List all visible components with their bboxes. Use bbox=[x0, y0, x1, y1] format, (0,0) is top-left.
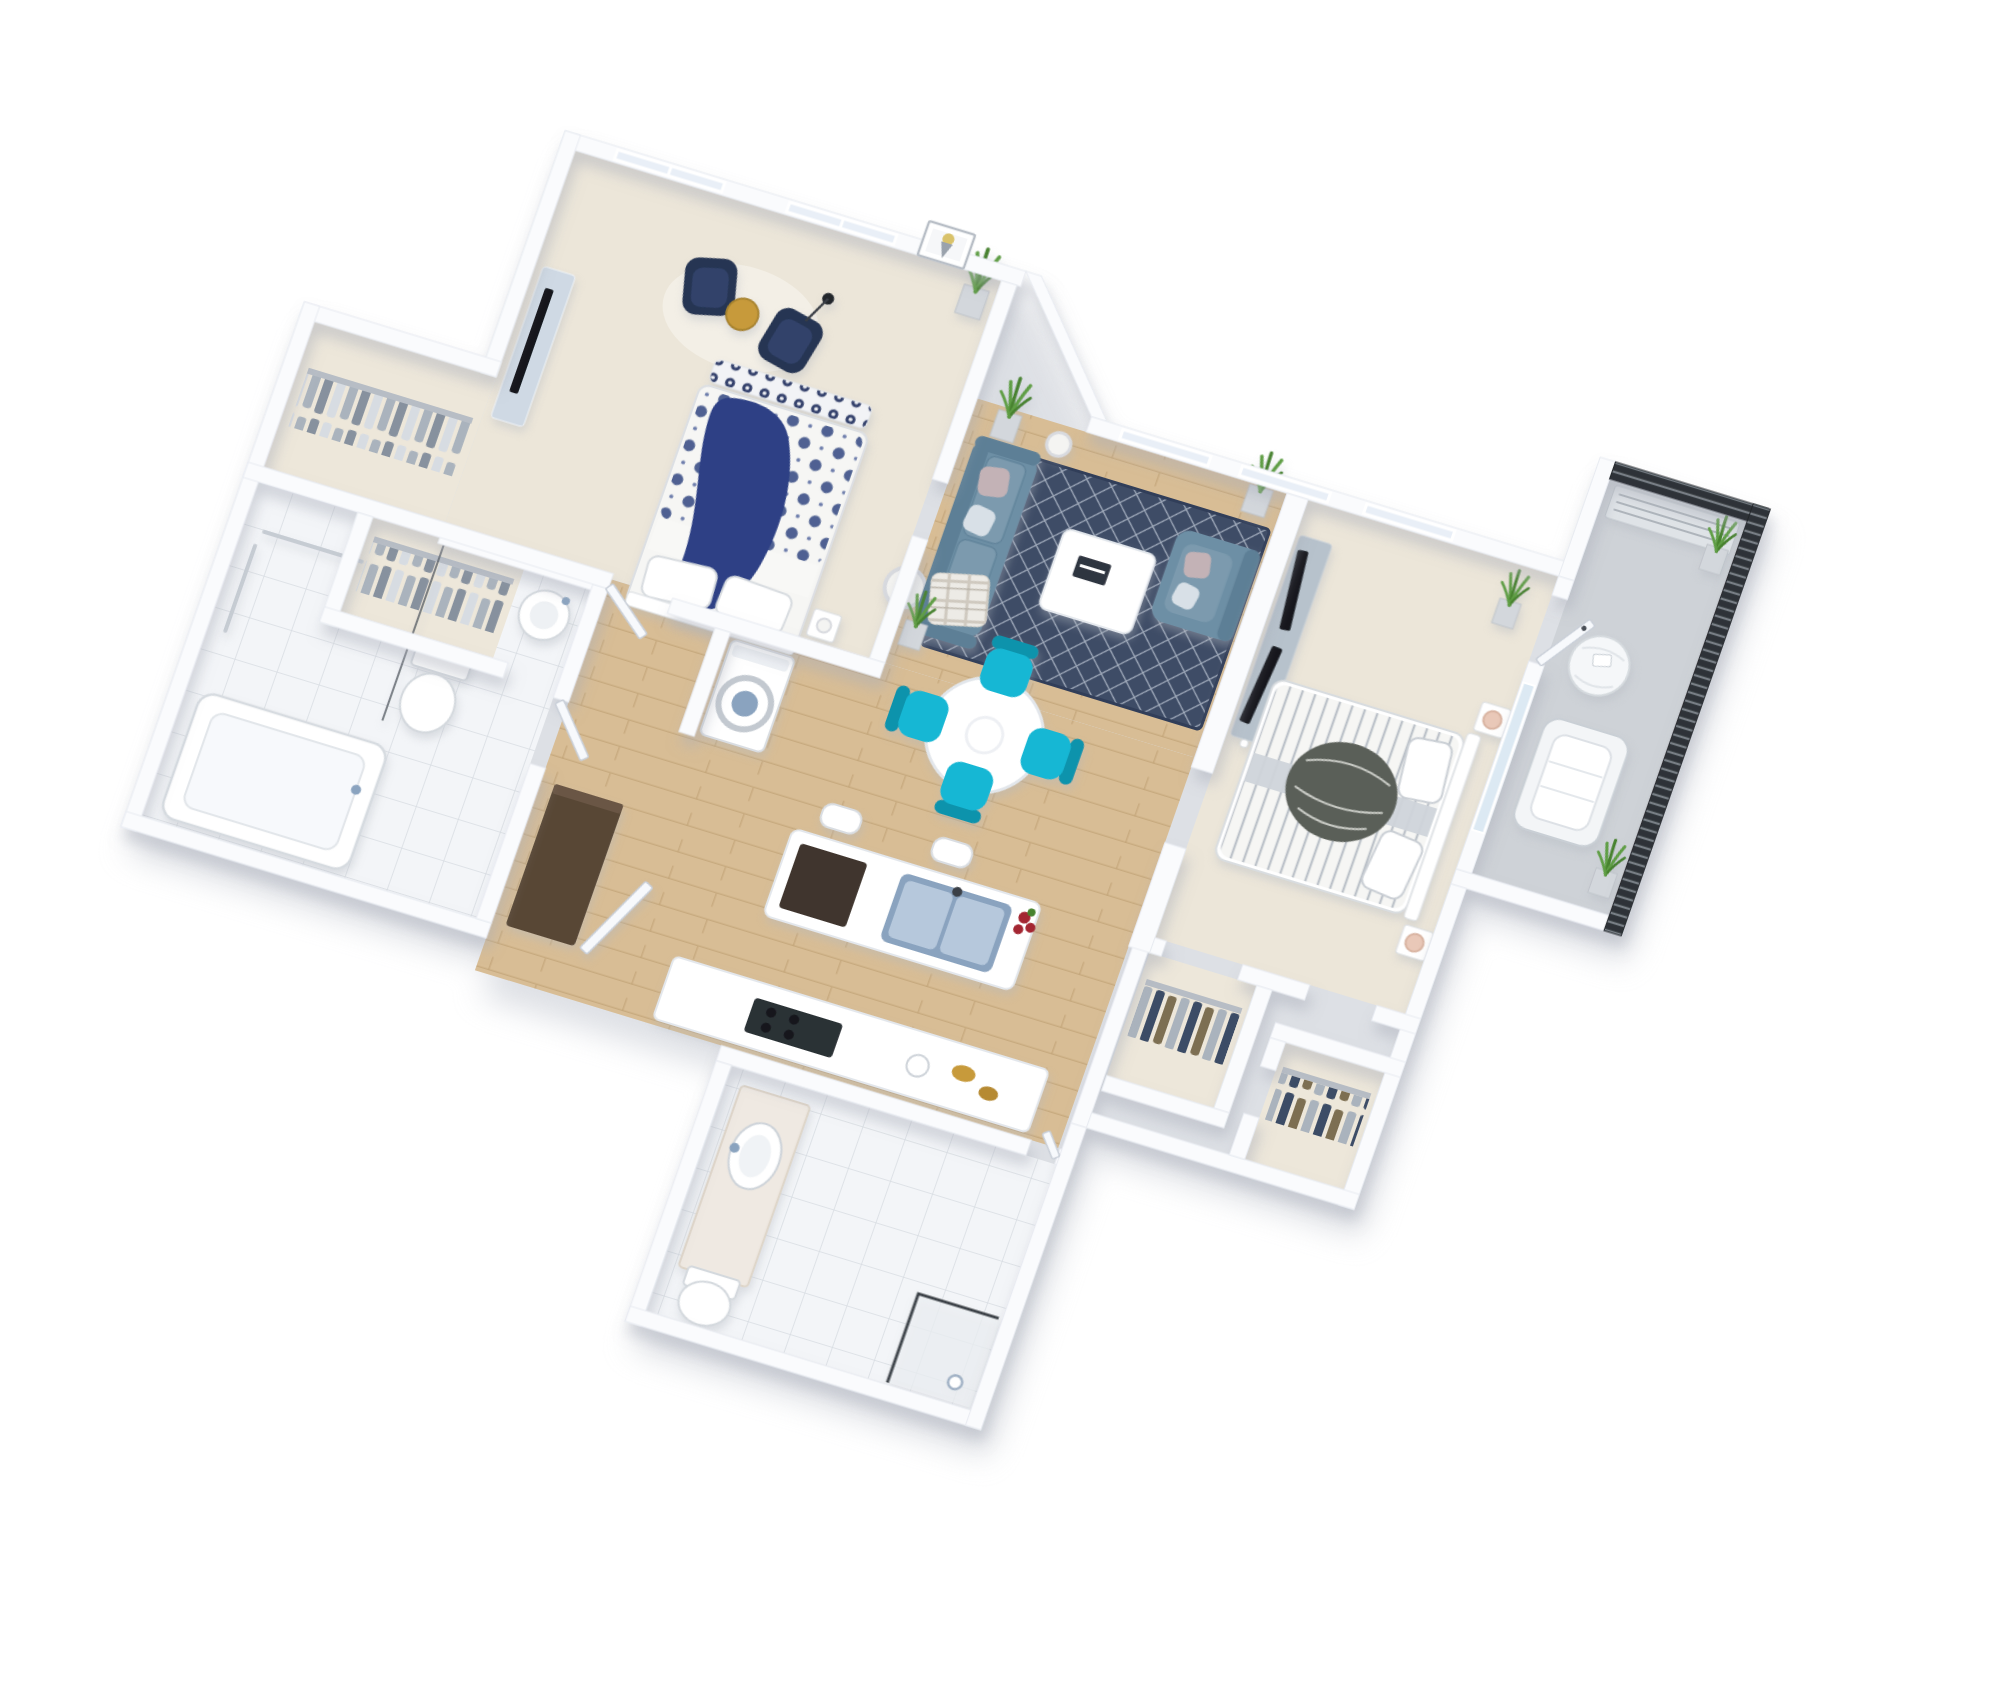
pillow bbox=[976, 465, 1011, 498]
plaid-throw bbox=[927, 573, 990, 627]
pillow bbox=[1183, 551, 1212, 579]
card bbox=[1593, 654, 1612, 667]
floorplan-3d-render bbox=[0, 0, 2000, 1700]
floorplan-canvas bbox=[0, 0, 2000, 1700]
